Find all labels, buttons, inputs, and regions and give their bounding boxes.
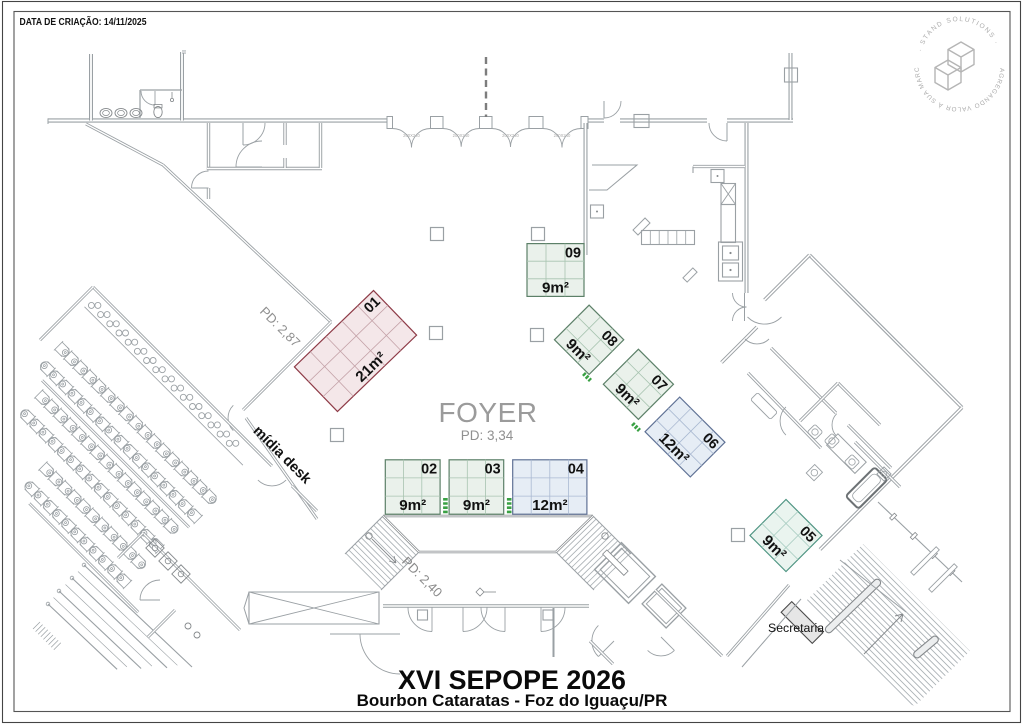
svg-text:9m²: 9m² xyxy=(399,497,426,514)
svg-text:9m²: 9m² xyxy=(542,279,569,296)
svg-text:PD: 3,34: PD: 3,34 xyxy=(461,428,514,443)
svg-text:200X240: 200X240 xyxy=(453,133,470,138)
svg-text:200X240: 200X240 xyxy=(554,133,571,138)
svg-text:200X240: 200X240 xyxy=(502,133,519,138)
svg-text:09: 09 xyxy=(565,245,581,261)
svg-text:03: 03 xyxy=(485,462,501,478)
svg-text:200X240: 200X240 xyxy=(403,133,420,138)
svg-text:FOYER: FOYER xyxy=(439,397,538,428)
svg-text:DATA DE CRIAÇÃO: 14/11/2025: DATA DE CRIAÇÃO: 14/11/2025 xyxy=(20,15,147,28)
svg-text:02: 02 xyxy=(421,462,437,478)
svg-text:Secretaria: Secretaria xyxy=(768,621,824,635)
svg-text:Bourbon Cataratas - Foz do Ig: Bourbon Cataratas - Foz do Iguaçu/PR xyxy=(357,691,668,710)
svg-text:12m²: 12m² xyxy=(532,497,567,514)
svg-text:9m²: 9m² xyxy=(463,497,490,514)
svg-text:04: 04 xyxy=(568,462,584,478)
